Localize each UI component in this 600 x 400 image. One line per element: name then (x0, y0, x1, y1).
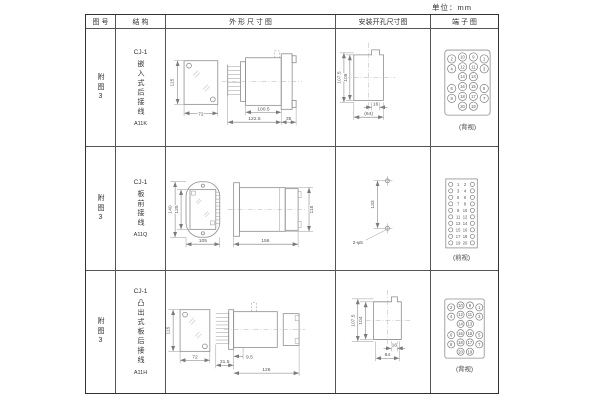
dim-inner-height: 104 (358, 316, 364, 324)
model-label: CJ-1 (134, 49, 148, 56)
svg-text:14: 14 (458, 321, 463, 326)
dim-front-length: 35 (286, 116, 292, 122)
dim-terminal-length: 31.5 (220, 359, 230, 365)
svg-text:18: 18 (458, 340, 463, 345)
figure-cell-r1: 附图3 (86, 29, 116, 147)
terminal-cell-r2: 1234567891011121314151617181920 (前视) (431, 147, 498, 271)
header-mounting: 安装开孔尺寸图 (336, 15, 431, 29)
cutout-view: 107.5 104 16 64 (350, 289, 411, 360)
svg-text:1: 1 (456, 182, 459, 187)
spec-table: 图 号 结 构 外 形 尺 寸 图 安装开孔尺寸图 端 子 图 附图3 CJ-1… (85, 14, 499, 394)
side-view: 100.5 122.5 35 (222, 51, 302, 125)
svg-text:13: 13 (471, 74, 476, 79)
outline-cell-r1: 115 72 (166, 29, 336, 147)
cutout-view: 107.5 105 16 (64) (336, 43, 395, 120)
dim-step-length: 9.5 (246, 354, 253, 360)
dim-front-width: 105 (199, 238, 207, 244)
terminal-grid: 2109141211314136161558181772019 (447, 53, 488, 111)
svg-text:18: 18 (462, 234, 467, 239)
structure-desc: 板前接线 (137, 190, 144, 228)
svg-text:16: 16 (458, 330, 463, 335)
dim-hole-width: (64) (364, 111, 373, 117)
terminal-drawing-r3: 2109141211314136161558181772019 (背视) (432, 272, 498, 393)
outline-drawing-r3: 115 72 (166, 272, 335, 393)
svg-text:12: 12 (458, 312, 463, 317)
svg-text:20: 20 (462, 240, 467, 245)
dim-outer-height: 107.5 (350, 314, 356, 327)
structure-desc: 凸出式板后接线 (137, 299, 144, 366)
dim-inner-height: 125 (174, 205, 180, 213)
dim-outer-height: 140 (168, 205, 174, 213)
svg-text:11: 11 (455, 214, 460, 219)
holes-view: 133 2-φ5 (353, 176, 393, 246)
dim-hole-width: 64 (385, 352, 391, 358)
dim-front-width: 72 (192, 354, 198, 360)
svg-text:16: 16 (460, 84, 465, 89)
mounting-drawing-r2: 133 2-φ5 (336, 147, 430, 270)
svg-text:11: 11 (471, 64, 476, 69)
dim-body-length: 126 (262, 367, 270, 373)
svg-text:5: 5 (456, 195, 459, 200)
svg-text:7: 7 (456, 201, 459, 206)
svg-text:3: 3 (456, 188, 459, 193)
page: 单位：mm 图 号 结 构 外 形 尺 寸 图 安装开孔尺寸图 端 子 图 附图… (0, 0, 600, 400)
svg-text:9: 9 (456, 208, 459, 213)
svg-text:15: 15 (471, 84, 476, 89)
figure-cell-r2: 附图3 (86, 147, 116, 271)
terminal-drawing-r1: 2109141211314136161558181772019 (背视) (432, 29, 498, 146)
figure-cell-r3: 附图3 (86, 271, 116, 393)
outline-cell-r3: 115 72 (166, 271, 336, 393)
structure-code: A11K (134, 121, 147, 127)
header-structure-label: 结 构 (133, 17, 149, 27)
outline-cell-r2: 140 125 105 (166, 147, 336, 271)
structure-block: CJ-1 嵌入式后接线 A11K (134, 49, 148, 127)
svg-text:10: 10 (460, 55, 465, 60)
svg-text:10: 10 (462, 208, 467, 213)
view-label: (背视) (455, 363, 472, 372)
structure-block: CJ-1 板前接线 A11Q (134, 179, 148, 238)
svg-text:17: 17 (471, 94, 476, 99)
view-label: (背视) (458, 122, 475, 131)
mounting-drawing-r1: 107.5 105 16 (64) (336, 29, 430, 146)
svg-text:19: 19 (455, 240, 460, 245)
svg-text:16: 16 (462, 227, 467, 232)
model-label: CJ-1 (134, 179, 148, 186)
header-terminal-label: 端 子 图 (452, 17, 477, 27)
svg-text:19: 19 (467, 349, 472, 354)
terminal-strip: 1234567891011121314151617181920 (448, 182, 474, 246)
header-figure: 图 号 (86, 15, 116, 29)
dim-front-height: 115 (166, 326, 172, 334)
svg-text:13: 13 (455, 221, 460, 226)
svg-text:11: 11 (467, 312, 472, 317)
dim-outer-height: 107.5 (336, 71, 342, 84)
svg-text:18: 18 (460, 94, 465, 99)
svg-text:2: 2 (463, 182, 466, 187)
header-structure: 结 构 (116, 15, 166, 29)
svg-text:15: 15 (467, 330, 472, 335)
side-view: 9.5 31.5 126 (216, 302, 305, 375)
svg-text:17: 17 (467, 340, 472, 345)
figure-number: 附图3 (97, 194, 104, 224)
dim-total-length: 122.5 (248, 116, 261, 122)
svg-text:12: 12 (460, 64, 465, 69)
terminal-cell-r1: 2109141211314136161558181772019 (背视) (431, 29, 498, 147)
mounting-cell-r2: 133 2-φ5 (336, 147, 431, 271)
dim-side-length: 156 (261, 238, 269, 244)
front-view: 115 72 (166, 309, 210, 363)
svg-text:14: 14 (462, 221, 467, 226)
mounting-drawing-r3: 107.5 104 16 64 (336, 272, 430, 393)
side-view: 156 115 (228, 183, 315, 247)
structure-cell-r3: CJ-1 凸出式板后接线 A11H (116, 271, 166, 393)
front-view: 115 72 (170, 61, 218, 118)
header-outline: 外 形 尺 寸 图 (166, 15, 336, 29)
terminal-cell-r3: 2109141211314136161558181772019 (背视) (431, 271, 498, 393)
svg-text:8: 8 (463, 201, 466, 206)
structure-cell-r2: CJ-1 板前接线 A11Q (116, 147, 166, 271)
svg-text:13: 13 (467, 321, 472, 326)
header-terminal: 端 子 图 (431, 15, 498, 29)
dim-front-width: 72 (198, 111, 204, 117)
dim-hole-distance: 133 (370, 200, 376, 208)
svg-text:12: 12 (462, 214, 467, 219)
svg-text:15: 15 (455, 227, 460, 232)
dim-body-length: 100.5 (257, 106, 270, 112)
dim-front-height: 115 (170, 78, 176, 86)
structure-cell-r1: CJ-1 嵌入式后接线 A11K (116, 29, 166, 147)
mounting-cell-r1: 107.5 105 16 (64) (336, 29, 431, 147)
header-figure-label: 图 号 (93, 17, 109, 27)
svg-text:17: 17 (455, 234, 460, 239)
figure-number: 附图3 (97, 73, 104, 103)
structure-block: CJ-1 凸出式板后接线 A11H (134, 288, 148, 376)
terminal-drawing-r2: 1234567891011121314151617181920 (前视) (432, 147, 498, 270)
header-mounting-label: 安装开孔尺寸图 (359, 17, 408, 27)
header-outline-label: 外 形 尺 寸 图 (229, 17, 272, 27)
svg-text:10: 10 (458, 302, 463, 307)
structure-code: A11H (134, 370, 147, 376)
structure-code: A11Q (134, 232, 148, 238)
mounting-cell-r3: 107.5 104 16 64 (336, 271, 431, 393)
dim-notch-width: 16 (392, 342, 398, 348)
svg-text:14: 14 (460, 74, 465, 79)
dim-notch-width: 16 (373, 101, 379, 107)
terminal-grid: 2109141211314136161558181772019 (447, 301, 482, 354)
view-label: (前视) (453, 253, 470, 262)
figure-number: 附图3 (97, 317, 104, 347)
svg-text:19: 19 (471, 104, 476, 109)
svg-text:4: 4 (463, 188, 466, 193)
front-view: 140 125 105 (168, 182, 221, 247)
dim-side-height: 115 (309, 205, 315, 213)
outline-drawing-r2: 140 125 105 (166, 147, 335, 270)
unit-label: 单位：mm (432, 2, 472, 13)
model-label: CJ-1 (134, 288, 148, 295)
outline-drawing-r1: 115 72 (166, 29, 335, 146)
hole-spec-label: 2-φ5 (353, 240, 364, 246)
svg-text:20: 20 (460, 104, 465, 109)
structure-desc: 嵌入式后接线 (137, 60, 144, 117)
svg-text:6: 6 (463, 195, 466, 200)
dim-inner-height: 105 (343, 73, 349, 81)
svg-text:20: 20 (458, 349, 463, 354)
